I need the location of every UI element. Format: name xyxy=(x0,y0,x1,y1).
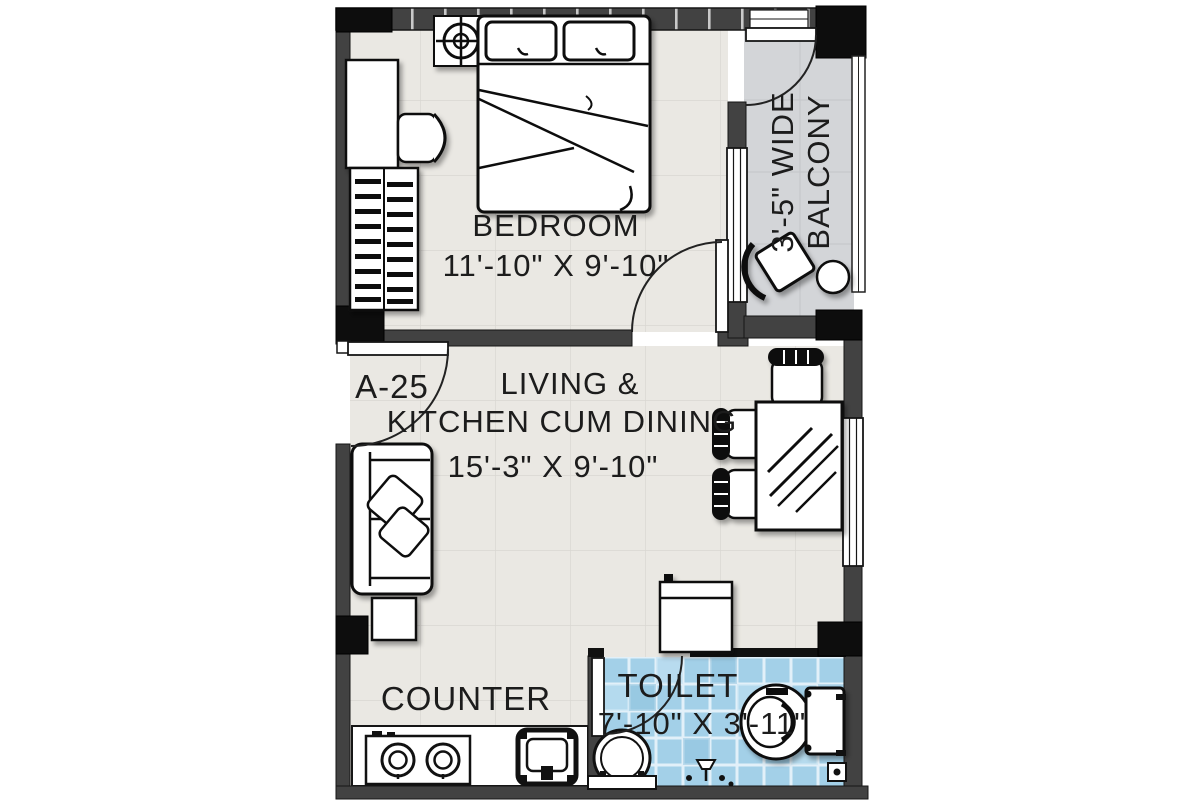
pillow-icon xyxy=(486,22,556,60)
bedroom-label: BEDROOM xyxy=(472,208,639,243)
column-toilet-corner xyxy=(818,622,862,656)
refrigerator-icon xyxy=(660,574,732,652)
dining-table-icon xyxy=(756,402,842,530)
kitchen-sink-icon xyxy=(518,730,576,784)
bedroom-size-label: 11'-10" X 9'-10" xyxy=(443,248,670,283)
dining-chair-icon xyxy=(768,348,824,406)
living-label-line2: KITCHEN CUM DINING xyxy=(387,404,737,439)
study-table-icon xyxy=(346,60,398,168)
desk-chair-icon xyxy=(398,114,445,162)
column-top-left xyxy=(336,8,392,32)
counter-label: COUNTER xyxy=(381,680,551,717)
toilet-size-label: 7'-10" X 3'-11" xyxy=(598,706,807,741)
balcony-label-line2: BALCONY xyxy=(801,94,836,249)
balcony-table-icon xyxy=(817,261,849,293)
column-balcony-bottom xyxy=(816,310,862,340)
floor-plan-drawing: BEDROOM 11'-10" X 9'-10" LIVING & KITCHE… xyxy=(0,0,1200,800)
balcony-label-line1: 3'-5" WIDE xyxy=(765,91,800,252)
pillow-icon xyxy=(564,22,634,60)
gas-stove-icon xyxy=(366,731,470,784)
side-table-icon xyxy=(372,598,416,640)
balcony-door-head-window-icon xyxy=(750,10,808,28)
column-left-mid xyxy=(336,306,384,344)
floor-plan-canvas: BEDROOM 11'-10" X 9'-10" LIVING & KITCHE… xyxy=(0,0,1200,800)
column-left-lower xyxy=(336,616,368,654)
living-window-icon xyxy=(843,418,863,566)
living-label-line1: LIVING & xyxy=(501,366,640,401)
column-top-right xyxy=(816,6,866,58)
balcony-railing xyxy=(852,56,865,292)
double-bed-icon xyxy=(478,16,650,212)
entry-door-label: A-25 xyxy=(355,368,429,405)
living-size-label: 15'-3" X 9'-10" xyxy=(448,449,659,484)
toilet-label: TOILET xyxy=(618,667,739,704)
sofa-icon xyxy=(352,444,432,594)
wardrobe-icon xyxy=(350,168,418,310)
